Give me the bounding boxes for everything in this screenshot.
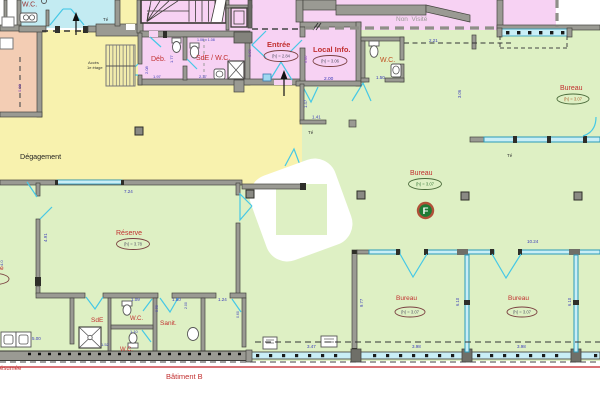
svg-text:Bâtiment B: Bâtiment B — [166, 372, 203, 381]
svg-text:6.10: 6.10 — [455, 297, 460, 306]
svg-text:1e étage: 1e étage — [87, 65, 103, 70]
svg-text:W.C.: W.C. — [120, 347, 133, 353]
svg-text:2.21: 2.21 — [429, 38, 438, 43]
svg-text:Bureau: Bureau — [410, 170, 433, 177]
svg-text:Bureau: Bureau — [396, 295, 417, 302]
svg-text:3.98: 3.98 — [517, 344, 526, 349]
svg-text:1.50: 1.50 — [172, 297, 181, 302]
svg-text:Local Info.: Local Info. — [313, 45, 351, 54]
svg-text:1.24: 1.24 — [218, 297, 227, 302]
svg-text:4.91: 4.91 — [43, 233, 48, 242]
svg-text:3.47: 3.47 — [307, 344, 316, 349]
svg-text:W.C.: W.C. — [380, 57, 395, 64]
svg-text:(h) = 3.06: (h) = 3.06 — [321, 59, 340, 64]
svg-text:1.47: 1.47 — [303, 99, 308, 108]
svg-text:W.C.: W.C. — [130, 316, 143, 322]
svg-text:(h) = 2.84: (h) = 2.84 — [272, 54, 291, 59]
svg-text:Té: Té — [103, 17, 109, 22]
svg-text:Déb.: Déb. — [151, 56, 166, 63]
svg-text:Non Visité: Non Visité — [396, 16, 428, 23]
svg-text:1.50: 1.50 — [376, 75, 385, 80]
svg-text:9.77: 9.77 — [359, 298, 364, 307]
svg-text:(h) = 3.07: (h) = 3.07 — [401, 310, 420, 315]
svg-text:ésumée: ésumée — [0, 366, 22, 372]
svg-text:W.C.: W.C. — [22, 2, 37, 9]
svg-text:4.0: 4.0 — [0, 260, 4, 266]
svg-text:0.60: 0.60 — [236, 311, 240, 318]
svg-text:2.00: 2.00 — [324, 76, 334, 82]
svg-text:Té: Té — [507, 153, 513, 158]
svg-text:Té: Té — [308, 130, 314, 135]
svg-text:1.52: 1.52 — [101, 342, 110, 347]
svg-text:1.41: 1.41 — [312, 115, 321, 120]
svg-text:Bureau: Bureau — [508, 295, 529, 302]
svg-text:1.09: 1.09 — [131, 297, 140, 302]
svg-text:1.77: 1.77 — [169, 54, 174, 63]
svg-text:2.00: 2.00 — [184, 302, 188, 309]
svg-text:3.98: 3.98 — [412, 344, 421, 349]
svg-text:Dégagement: Dégagement — [20, 152, 61, 161]
svg-text:0.90: 0.90 — [155, 305, 159, 312]
svg-text:(h) = 3.07: (h) = 3.07 — [513, 310, 532, 315]
svg-text:(h) = 3.07: (h) = 3.07 — [416, 182, 435, 187]
svg-text:7.24: 7.24 — [124, 189, 133, 194]
svg-text:Entrée: Entrée — [267, 40, 290, 49]
svg-text:1.97: 1.97 — [153, 74, 162, 79]
svg-text:(h) = 3.78: (h) = 3.78 — [124, 242, 143, 247]
svg-text:1.06 x 1.08: 1.06 x 1.08 — [197, 38, 215, 42]
svg-text:(h) = 3.07: (h) = 3.07 — [564, 97, 583, 102]
svg-text:Bureau: Bureau — [560, 85, 583, 92]
svg-text:6.10: 6.10 — [567, 297, 572, 306]
svg-text:5.00: 5.00 — [32, 336, 41, 341]
svg-text:F: F — [423, 206, 429, 217]
svg-text:SdE: SdE — [91, 317, 104, 324]
svg-text:0.60: 0.60 — [304, 56, 308, 63]
svg-text:0.98: 0.98 — [17, 83, 22, 92]
svg-text:Réserve: Réserve — [116, 230, 142, 237]
svg-text:3.06: 3.06 — [457, 89, 462, 98]
svg-text:0.80: 0.80 — [247, 48, 252, 57]
svg-text:10.24: 10.24 — [527, 239, 539, 244]
svg-text:SdE / W.C.: SdE / W.C. — [196, 55, 230, 62]
svg-text:2.08: 2.08 — [144, 65, 149, 74]
svg-text:Sanit.: Sanit. — [160, 320, 177, 327]
svg-text:2.37: 2.37 — [199, 74, 208, 79]
svg-text:1.10: 1.10 — [130, 329, 139, 334]
